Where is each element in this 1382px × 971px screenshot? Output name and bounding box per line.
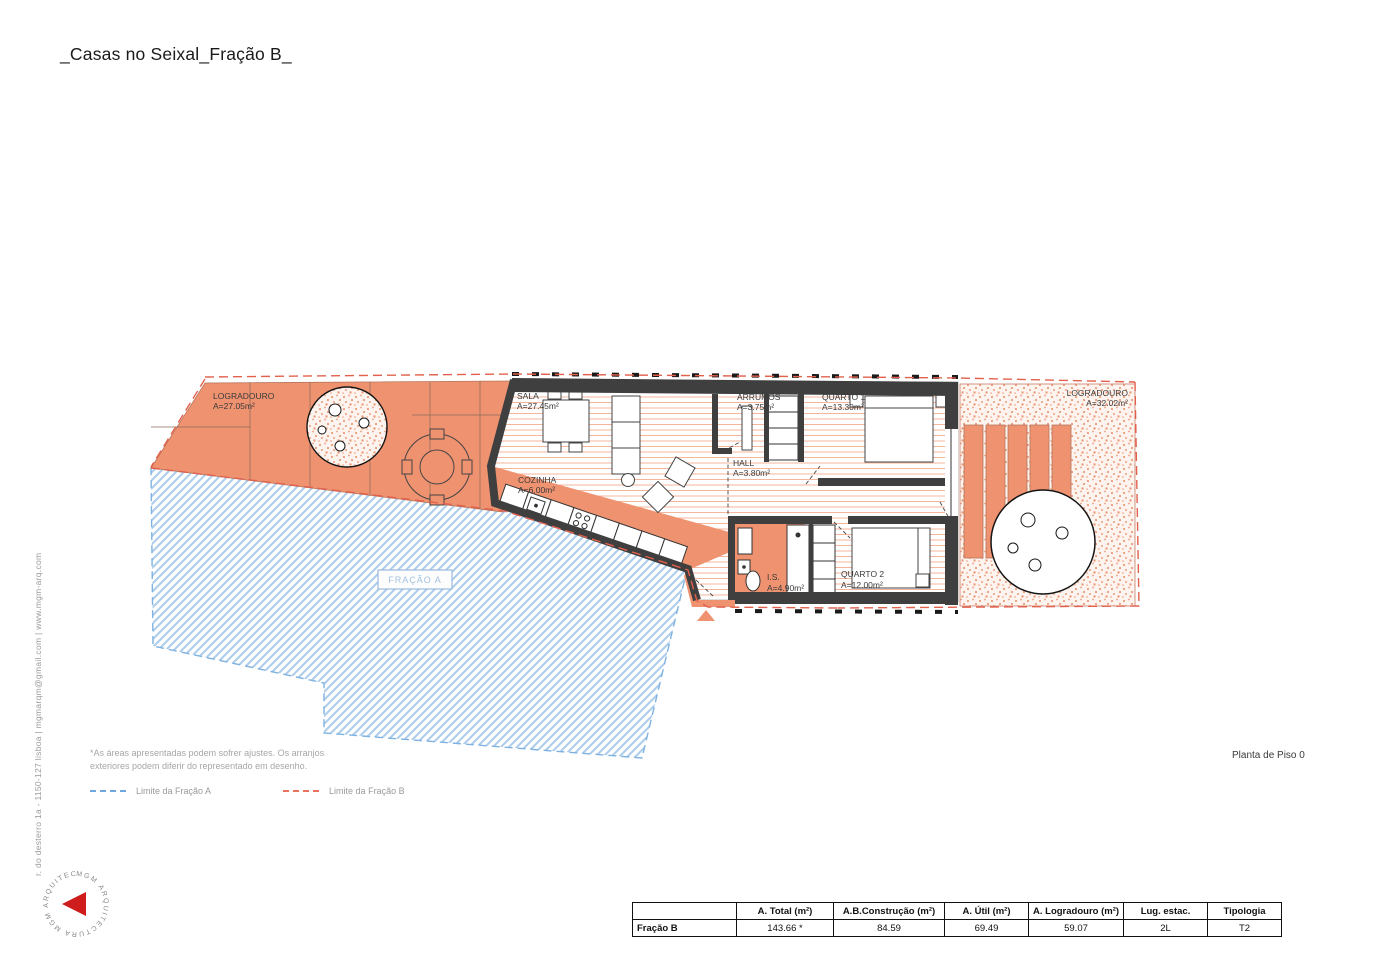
quarto2-furniture	[852, 528, 930, 588]
col-header: A.B.Construção (m²)	[834, 903, 945, 920]
logradouro-right: LOGRADOURO A=32.02m²	[960, 384, 1135, 606]
svg-text:A=3.80m²: A=3.80m²	[733, 468, 770, 478]
closet-cells	[813, 525, 835, 598]
svg-text:I.S.: I.S.	[767, 572, 780, 582]
svg-text:A=4.90m²: A=4.90m²	[767, 583, 804, 593]
note-line-2: exteriores podem diferir do representado…	[90, 760, 324, 773]
cell-logradouro: 59.07	[1029, 920, 1124, 937]
col-header: Lug. estac.	[1124, 903, 1208, 920]
col-header: A. Total (m²)	[737, 903, 834, 920]
col-header	[633, 903, 737, 920]
floor-plan: FRAÇÃO A	[150, 370, 1150, 770]
tree-left	[307, 387, 387, 467]
table-row: Fração B 143.66 * 84.59 69.49 59.07 2L T…	[633, 920, 1282, 937]
legend-label-fracao-b: Limite da Fração B	[329, 786, 405, 796]
col-header: Tipologia	[1208, 903, 1282, 920]
svg-text:A=12.00m²: A=12.00m²	[841, 580, 883, 590]
svg-text:QUARTO 2: QUARTO 2	[841, 569, 884, 579]
svg-text:A=27.45m²: A=27.45m²	[517, 401, 559, 411]
cell-construcao: 84.59	[834, 920, 945, 937]
cell-total: 143.66 *	[737, 920, 834, 937]
svg-text:A=6.00m²: A=6.00m²	[518, 485, 555, 495]
drawing-title: Planta de Piso 0	[1232, 750, 1305, 761]
col-header: A. Logradouro (m²)	[1029, 903, 1124, 920]
fracao-a-label: FRAÇÃO A	[388, 575, 442, 585]
svg-text:SALA: SALA	[517, 391, 539, 401]
page-title: _Casas no Seixal_Fração B_	[60, 44, 292, 65]
col-header: A. Útil (m²)	[945, 903, 1029, 920]
room-label: LOGRADOURO	[1067, 388, 1129, 398]
table-header-row: A. Total (m²) A.B.Construção (m²) A. Úti…	[633, 903, 1282, 920]
svg-text:A=3.75m²: A=3.75m²	[737, 402, 774, 412]
logo-triangle-icon	[62, 892, 86, 916]
areas-table: A. Total (m²) A.B.Construção (m²) A. Úti…	[632, 902, 1282, 937]
svg-text:QUARTO 1: QUARTO 1	[822, 392, 865, 402]
room-label: LOGRADOURO	[213, 391, 275, 401]
room-area: A=27.05m²	[213, 401, 255, 411]
svg-text:A=13.30m²: A=13.30m²	[822, 402, 864, 412]
area-notes: *As áreas apresentadas podem sofrer ajus…	[90, 747, 324, 773]
svg-text:COZINHA: COZINHA	[518, 475, 557, 485]
entrance-marker-icon	[697, 610, 715, 621]
limit-a-dash-icon	[90, 790, 126, 792]
svg-text:HALL: HALL	[733, 458, 755, 468]
firm-logo: MGM ARQUITECTURA MGM ARQUITECTURA	[38, 860, 114, 948]
cell-tipologia: T2	[1208, 920, 1282, 937]
legend: Limite da Fração A Limite da Fração B	[90, 786, 405, 796]
tree-right	[991, 490, 1095, 594]
svg-text:ARRUMOS: ARRUMOS	[737, 392, 781, 402]
note-line-1: *As áreas apresentadas podem sofrer ajus…	[90, 747, 324, 760]
arrumos-shelf	[742, 406, 752, 450]
cell-util: 69.49	[945, 920, 1029, 937]
drawing-sheet: _Casas no Seixal_Fração B_ r. do desterr…	[0, 0, 1382, 971]
room-area: A=32.02m²	[1086, 398, 1128, 408]
limit-b-dash-icon	[283, 790, 319, 792]
firm-address: r. do desterro 1a - 1150-127 lisboa | mg…	[33, 553, 43, 876]
row-label: Fração B	[633, 920, 737, 937]
window-right-wall	[945, 426, 958, 519]
legend-label-fracao-a: Limite da Fração A	[136, 786, 211, 796]
cell-estac: 2L	[1124, 920, 1208, 937]
